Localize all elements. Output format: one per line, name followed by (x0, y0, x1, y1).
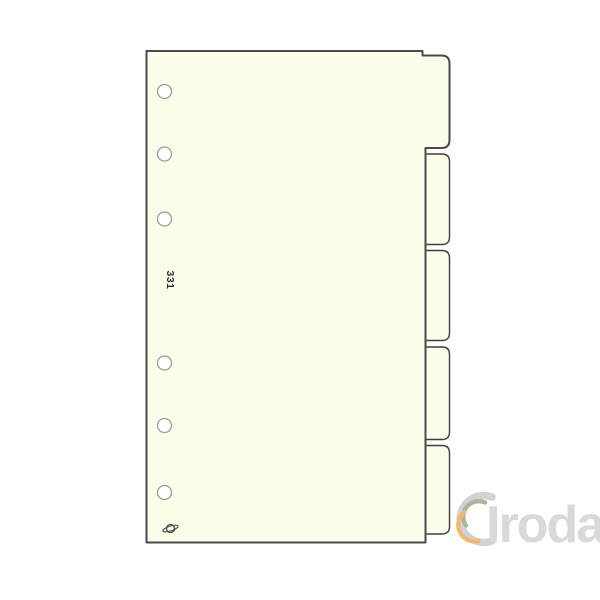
punch-hole (158, 419, 172, 433)
punch-hole (158, 147, 172, 161)
product-code-label: 331 (164, 270, 176, 289)
iroda-watermark: Iroda (458, 496, 600, 554)
divider-sheet (147, 51, 450, 543)
punch-hole (158, 486, 172, 500)
divider-sheet-illustration: 331 Iroda (0, 0, 600, 600)
punch-hole (158, 356, 172, 370)
punch-hole (158, 212, 172, 226)
watermark-text: Iroda (486, 496, 600, 554)
product-photo: 331 Iroda (0, 0, 600, 600)
punch-hole (158, 85, 172, 99)
